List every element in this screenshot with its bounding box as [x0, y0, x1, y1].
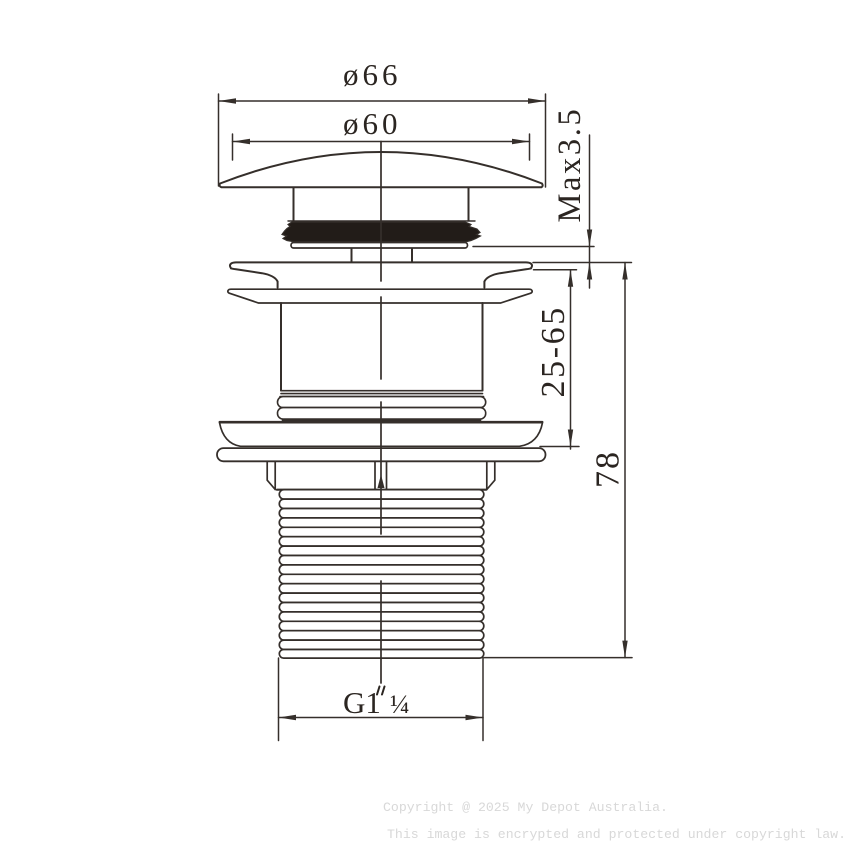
- svg-text:¼: ¼: [390, 690, 410, 719]
- svg-text:25-65: 25-65: [535, 305, 572, 397]
- svg-text:G1: G1: [343, 685, 381, 720]
- svg-text:ø66: ø66: [343, 57, 402, 92]
- svg-text:Copyright @ 2025 My Depot Aust: Copyright @ 2025 My Depot Australia.: [383, 800, 668, 815]
- svg-text:Max3.5: Max3.5: [552, 107, 588, 223]
- svg-text:ø60: ø60: [343, 106, 402, 141]
- svg-text:78: 78: [590, 450, 627, 488]
- svg-text:This image is encrypted and pr: This image is encrypted and protected un…: [387, 827, 846, 842]
